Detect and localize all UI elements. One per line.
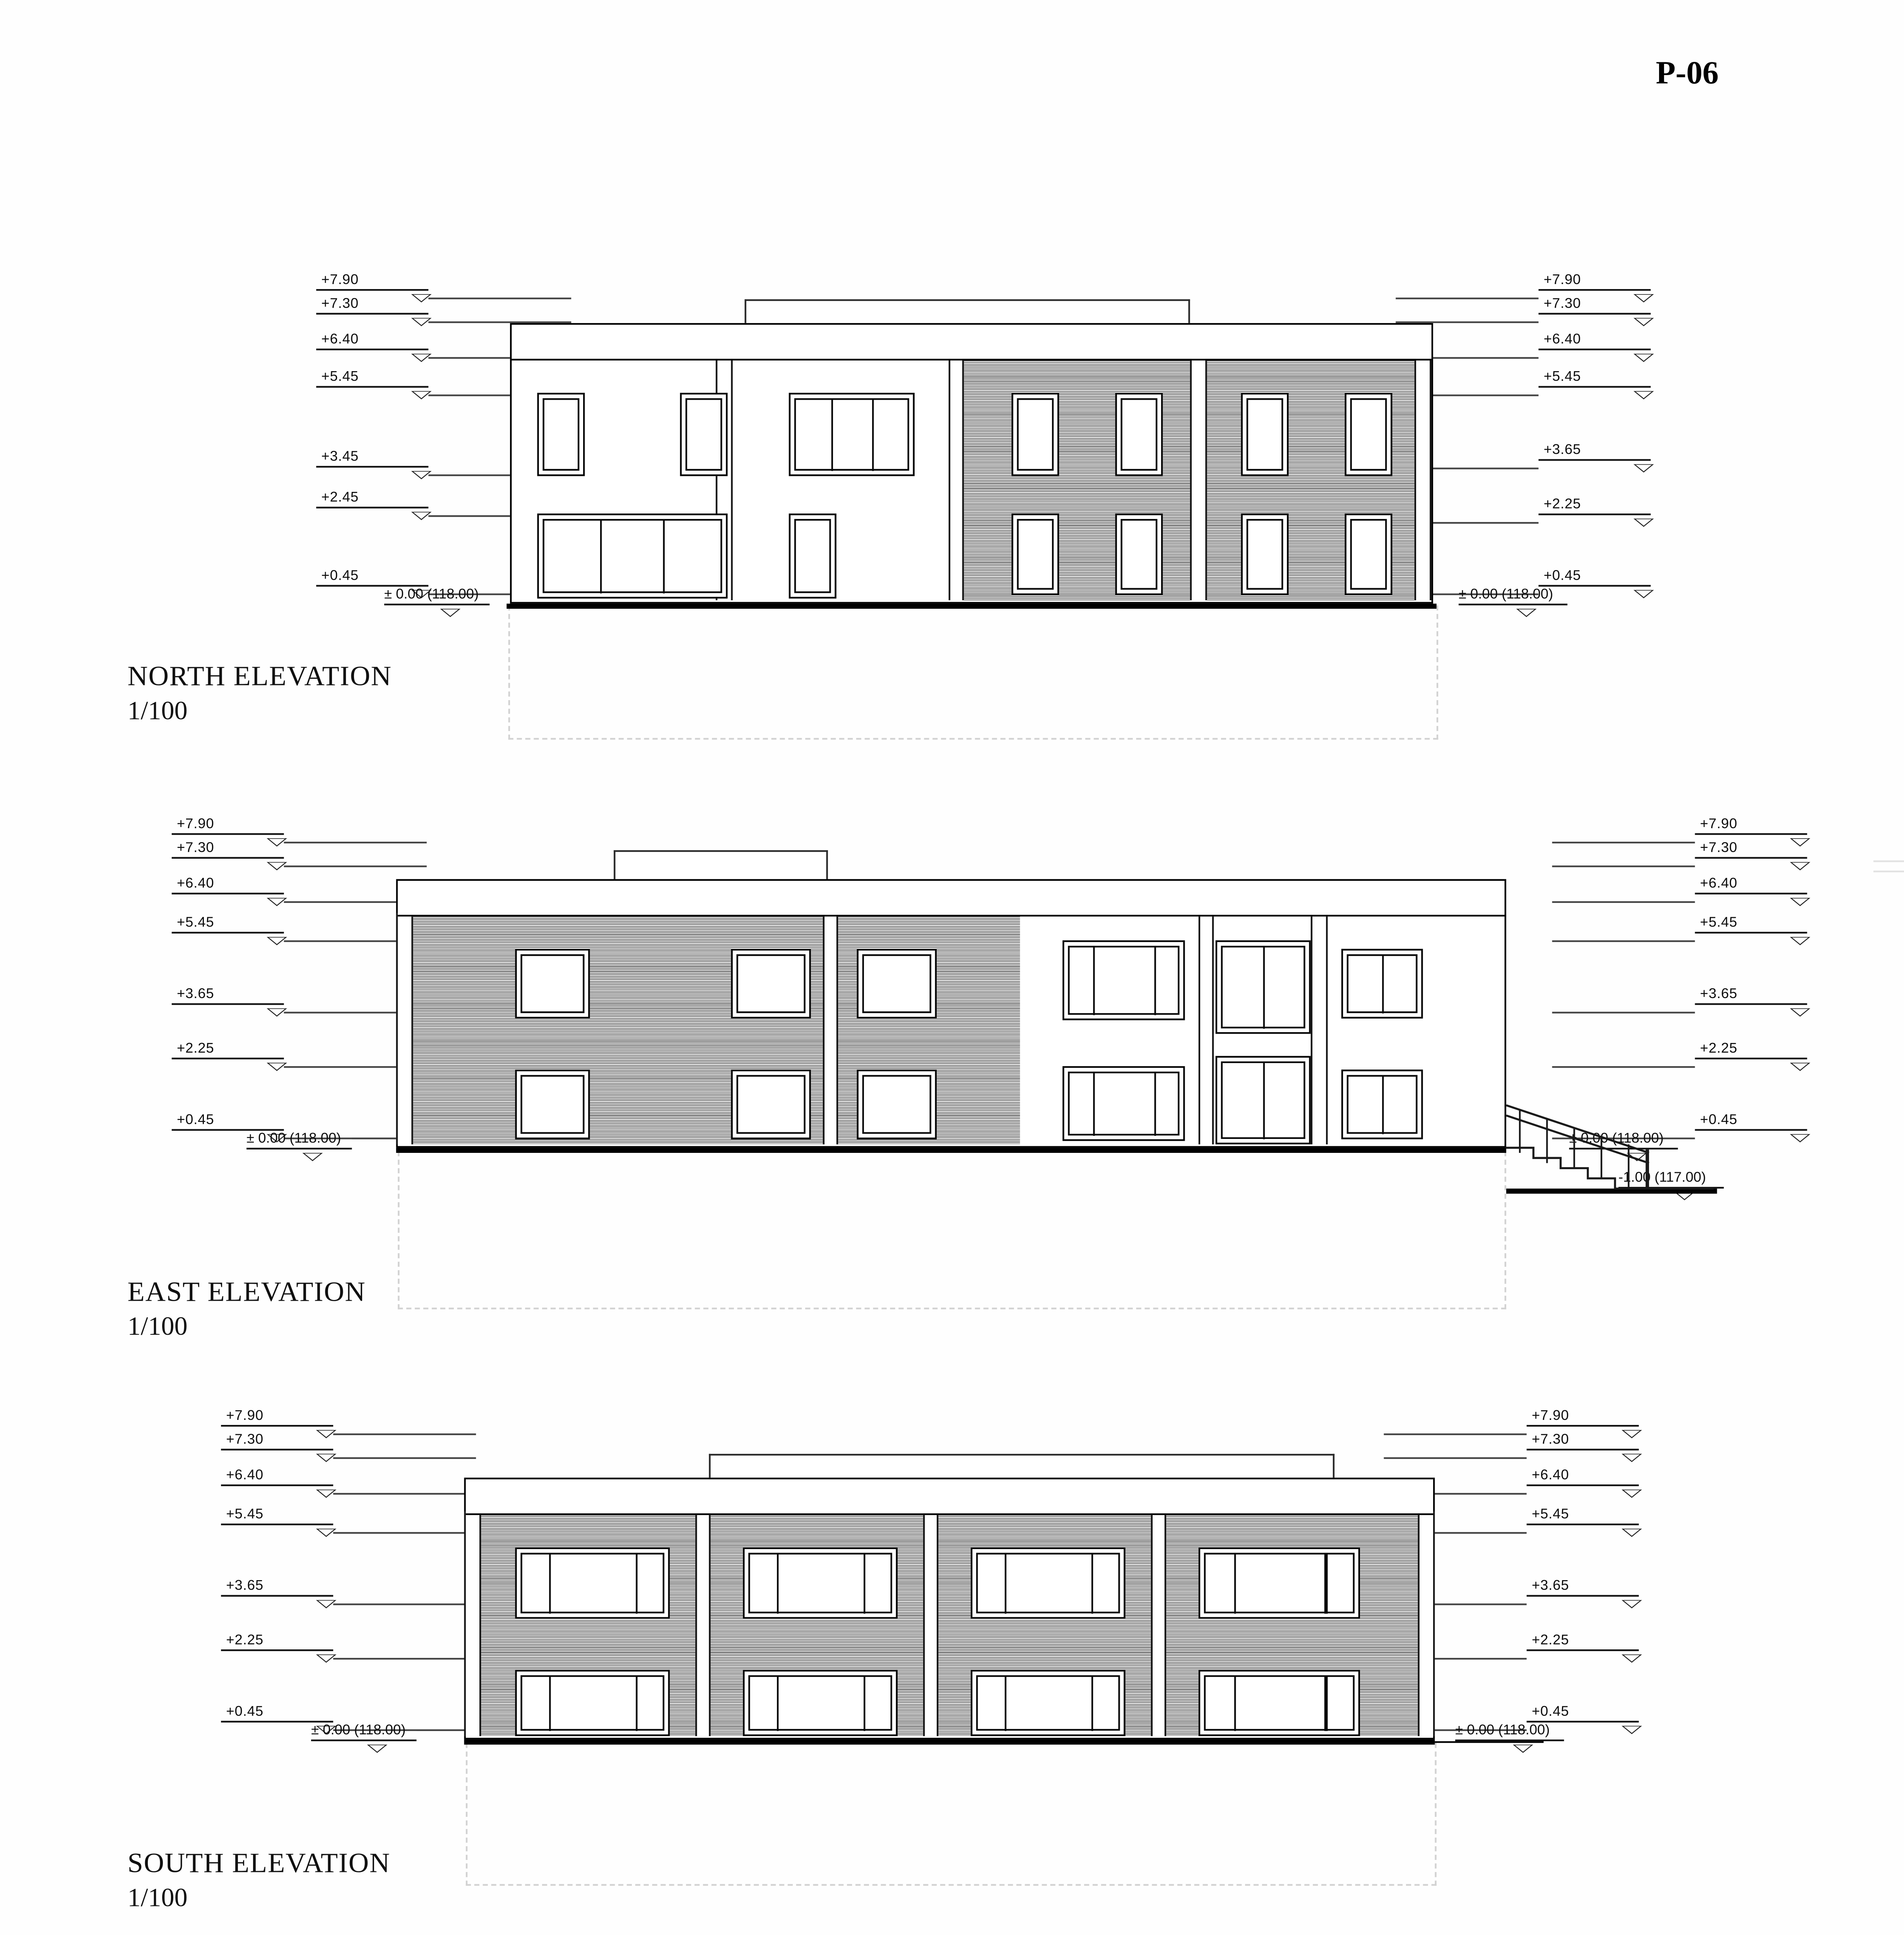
pilaster [1311, 913, 1328, 1144]
window [731, 949, 811, 1019]
level-marker: +2.25▽ [1527, 1629, 1639, 1651]
level-triangle-icon: ▽ [1622, 1452, 1642, 1462]
level-marker: +7.90▽ [172, 813, 284, 835]
fascia-band [466, 1480, 1433, 1515]
level-marker: +7.90▽ [316, 269, 428, 291]
window [1199, 1547, 1360, 1619]
window [1341, 1070, 1423, 1139]
leader-line [1552, 901, 1695, 902]
leader-line [1396, 320, 1538, 322]
level-triangle-icon: ▽ [1790, 1061, 1811, 1071]
level-label: +7.90 [321, 269, 359, 288]
level-label: +7.90 [226, 1405, 263, 1424]
window [857, 949, 937, 1019]
level-marker: +3.65▽ [1538, 439, 1651, 461]
foundation-dashed-outline [466, 1743, 1437, 1886]
leader-line [333, 1492, 476, 1494]
level-label: +7.90 [1544, 269, 1581, 288]
window [515, 1670, 670, 1736]
level-label: +7.30 [1532, 1429, 1569, 1448]
level-marker: +7.90▽ [221, 1404, 333, 1426]
level-triangle-icon: ▽ [1634, 588, 1654, 598]
level-label: +2.25 [1532, 1630, 1569, 1648]
window [789, 514, 837, 599]
leader-line [333, 1433, 476, 1434]
roof-box [614, 850, 828, 879]
drawing-sheet: P-06 +7.90▽ +7.30▽ +6.40▽ +5.45▽ +3.45▽ … [0, 0, 1904, 1935]
level-marker: +5.45▽ [172, 911, 284, 933]
stairs [1503, 1088, 1720, 1197]
window [1345, 393, 1392, 476]
window [789, 393, 915, 476]
level-marker: +7.90▽ [1538, 269, 1651, 291]
leader-line [333, 1456, 476, 1458]
fascia-band [512, 325, 1432, 360]
level-label: +7.90 [1532, 1405, 1569, 1424]
level-label: +6.40 [226, 1465, 263, 1483]
level-label: +7.90 [177, 813, 214, 832]
level-triangle-icon: ▽ [1790, 1007, 1811, 1017]
level-triangle-icon: ▽ [1790, 1132, 1811, 1142]
level-triangle-icon: ▽ [1622, 1488, 1642, 1498]
level-marker: +7.30▽ [316, 293, 428, 315]
window [537, 393, 585, 476]
level-label: +5.45 [321, 366, 359, 385]
fascia-band [398, 881, 1504, 916]
level-marker: +7.90▽ [1527, 1404, 1639, 1426]
window [1115, 393, 1163, 476]
level-label: +5.45 [226, 1504, 263, 1522]
level-marker: +7.30▽ [1695, 837, 1807, 859]
level-marker: +7.30▽ [1527, 1428, 1639, 1450]
datum-label: ± 0.00 (118.00) [246, 1128, 341, 1147]
pilaster [923, 1512, 939, 1736]
level-label: +2.25 [1700, 1038, 1738, 1057]
level-triangle-icon: ▽ [367, 1743, 387, 1753]
pilaster [695, 1512, 711, 1736]
leader-line [428, 297, 571, 298]
level-label: +7.90 [1700, 813, 1738, 832]
level-label: +3.45 [321, 446, 359, 465]
pilaster [1151, 1512, 1167, 1736]
pilaster [949, 360, 964, 600]
ground-line [506, 604, 1436, 608]
level-marker: +6.40▽ [316, 328, 428, 350]
level-label: +5.45 [1700, 912, 1738, 931]
level-label: +3.65 [1700, 984, 1738, 1002]
page: P-06 +7.90▽ +7.30▽ +6.40▽ +5.45▽ +3.45▽ … [0, 0, 1904, 1935]
level-triangle-icon: ▽ [1790, 860, 1811, 870]
level-label: +0.45 [226, 1701, 263, 1720]
window [1199, 1670, 1360, 1736]
level-label: +2.25 [1544, 494, 1581, 512]
leader-line [352, 1137, 396, 1138]
level-label: +7.30 [321, 293, 359, 312]
pilaster [1418, 1512, 1435, 1736]
level-label: +7.30 [1544, 293, 1581, 312]
elevation-scale: 1/100 [128, 697, 188, 728]
level-label: +6.40 [1700, 873, 1738, 892]
level-label: +3.65 [177, 984, 214, 1002]
pilaster [1415, 360, 1432, 600]
page-number: P-06 [1656, 56, 1719, 94]
window [515, 1070, 590, 1139]
level-marker: +5.45▽ [316, 366, 428, 388]
leader-line [284, 841, 427, 842]
level-triangle-icon: ▽ [302, 1151, 323, 1161]
level-label: +6.40 [1532, 1465, 1569, 1483]
window [1241, 393, 1288, 476]
elevation-title: SOUTH ELEVATION [128, 1847, 391, 1881]
window [680, 393, 728, 476]
level-marker: +5.45▽ [1538, 366, 1651, 388]
level-marker: +3.65▽ [172, 983, 284, 1005]
level-marker: +2.45▽ [316, 486, 428, 509]
window [515, 1547, 670, 1619]
level-triangle-icon: ▽ [1622, 1653, 1642, 1663]
level-triangle-icon: ▽ [1634, 462, 1654, 473]
pilaster [464, 1512, 481, 1736]
level-triangle-icon: ▽ [1634, 316, 1654, 326]
level-triangle-icon: ▽ [1634, 389, 1654, 399]
pilaster [1199, 913, 1214, 1144]
level-label: +6.40 [321, 329, 359, 348]
level-marker: +6.40▽ [221, 1464, 333, 1486]
elevation-title: NORTH ELEVATION [128, 660, 392, 694]
window [731, 1070, 811, 1139]
level-label: +3.65 [1544, 440, 1581, 458]
leader-line [1552, 1065, 1695, 1067]
level-marker: +3.45▽ [316, 445, 428, 467]
leader-line [1552, 841, 1695, 842]
window [971, 1547, 1126, 1619]
level-marker: +2.25▽ [221, 1629, 333, 1651]
elevation-scale: 1/100 [128, 1313, 188, 1343]
roof-box [709, 1454, 1334, 1478]
level-label: +2.25 [226, 1630, 263, 1648]
datum-annotation: ± 0.00 (118.00)▽ [1455, 1719, 1564, 1741]
level-label: +7.30 [1700, 837, 1738, 856]
window [1115, 514, 1163, 595]
pilaster [396, 913, 413, 1144]
datum-annotation: ± 0.00 (118.00)▽ [1459, 583, 1567, 605]
level-label: +6.40 [1544, 329, 1581, 348]
level-label: +5.45 [1532, 1504, 1569, 1522]
level-marker: +5.45▽ [1695, 911, 1807, 933]
window [743, 1547, 898, 1619]
window [1241, 514, 1288, 595]
level-label: +3.65 [1532, 1575, 1569, 1594]
level-triangle-icon: ▽ [1622, 1724, 1642, 1734]
level-label: +7.30 [177, 837, 214, 856]
level-marker: +7.30▽ [221, 1428, 333, 1450]
datum-label: ± 0.00 (118.00) [384, 584, 479, 603]
level-label: +6.40 [177, 873, 214, 892]
elevation-scale: 1/100 [128, 1884, 188, 1914]
level-marker: +7.30▽ [172, 837, 284, 859]
level-label: +5.45 [177, 912, 214, 931]
window [1062, 1066, 1185, 1141]
margin-artifact-line [1873, 871, 1904, 872]
window [743, 1670, 898, 1736]
window [1345, 514, 1392, 595]
level-marker: +6.40▽ [1538, 328, 1651, 350]
datum-annotation: ± 0.00 (118.00)▽ [246, 1127, 352, 1149]
level-label: +5.45 [1544, 366, 1581, 385]
leader-line [1396, 297, 1538, 298]
level-marker: +2.25▽ [172, 1037, 284, 1059]
entrance-door [1216, 1056, 1311, 1144]
leader-line [428, 320, 571, 322]
level-triangle-icon: ▽ [440, 607, 460, 617]
level-marker: +3.65▽ [221, 1575, 333, 1597]
level-triangle-icon: ▽ [1513, 1743, 1533, 1753]
datum-annotation: ± 0.00 (118.00)▽ [311, 1719, 416, 1741]
window [971, 1670, 1126, 1736]
level-triangle-icon: ▽ [1634, 517, 1654, 527]
pilaster [823, 913, 838, 1144]
level-triangle-icon: ▽ [1622, 1598, 1642, 1608]
level-marker: +7.30▽ [1538, 293, 1651, 315]
level-label: +7.30 [226, 1429, 263, 1448]
level-triangle-icon: ▽ [1634, 352, 1654, 362]
ground-line [396, 1148, 1506, 1152]
roof-box [744, 299, 1190, 323]
ground-line-extension [1435, 1741, 1543, 1743]
ground-line [464, 1740, 1435, 1744]
level-marker: +2.25▽ [1538, 493, 1651, 515]
level-marker: +6.40▽ [172, 872, 284, 894]
window [515, 949, 590, 1019]
level-label: +2.45 [321, 487, 359, 506]
datum-annotation: ± 0.00 (118.00)▽ [384, 583, 489, 605]
level-marker: +5.45▽ [1527, 1503, 1639, 1525]
window [1011, 393, 1059, 476]
datum-label: ± 0.00 (118.00) [1459, 584, 1553, 603]
leader-line [333, 1603, 476, 1604]
level-triangle-icon: ▽ [1622, 1527, 1642, 1537]
level-marker: +6.40▽ [1527, 1464, 1639, 1486]
window [1341, 949, 1423, 1019]
level-marker: +3.65▽ [1527, 1575, 1639, 1597]
window [1011, 514, 1059, 595]
level-marker: +6.40▽ [1695, 872, 1807, 894]
level-marker: +2.25▽ [1695, 1037, 1807, 1059]
leader-line [1552, 865, 1695, 866]
foundation-dashed-outline [398, 1151, 1506, 1310]
window [857, 1070, 937, 1139]
leader-line [1552, 940, 1695, 941]
leader-line [1384, 1456, 1527, 1458]
level-label: +0.45 [1544, 565, 1581, 584]
elevation-title: EAST ELEVATION [128, 1275, 366, 1309]
level-label: +2.25 [177, 1038, 214, 1057]
level-label: +3.65 [226, 1575, 263, 1594]
leader-line [333, 1657, 476, 1659]
window [1216, 940, 1311, 1034]
datum-label: ± 0.00 (118.00) [1455, 1720, 1550, 1738]
level-triangle-icon: ▽ [1516, 607, 1537, 617]
pilaster [1190, 360, 1207, 600]
level-label: +0.45 [321, 565, 359, 584]
level-triangle-icon: ▽ [1790, 935, 1811, 945]
window [1062, 940, 1185, 1021]
level-triangle-icon: ▽ [1790, 896, 1811, 906]
leader-line [333, 1531, 476, 1533]
leader-line [416, 1728, 464, 1730]
level-marker: +5.45▽ [221, 1503, 333, 1525]
leader-line [1384, 1433, 1527, 1434]
leader-line [1552, 1011, 1695, 1012]
level-label: +0.45 [1532, 1701, 1569, 1720]
foundation-dashed-outline [508, 605, 1438, 740]
window [537, 514, 727, 599]
datum-label: ± 0.00 (118.00) [311, 1720, 405, 1738]
margin-artifact-line [1873, 860, 1904, 862]
level-marker: +3.65▽ [1695, 983, 1807, 1005]
level-marker: +7.90▽ [1695, 813, 1807, 835]
level-label: +0.45 [177, 1110, 214, 1128]
leader-line [284, 865, 427, 866]
